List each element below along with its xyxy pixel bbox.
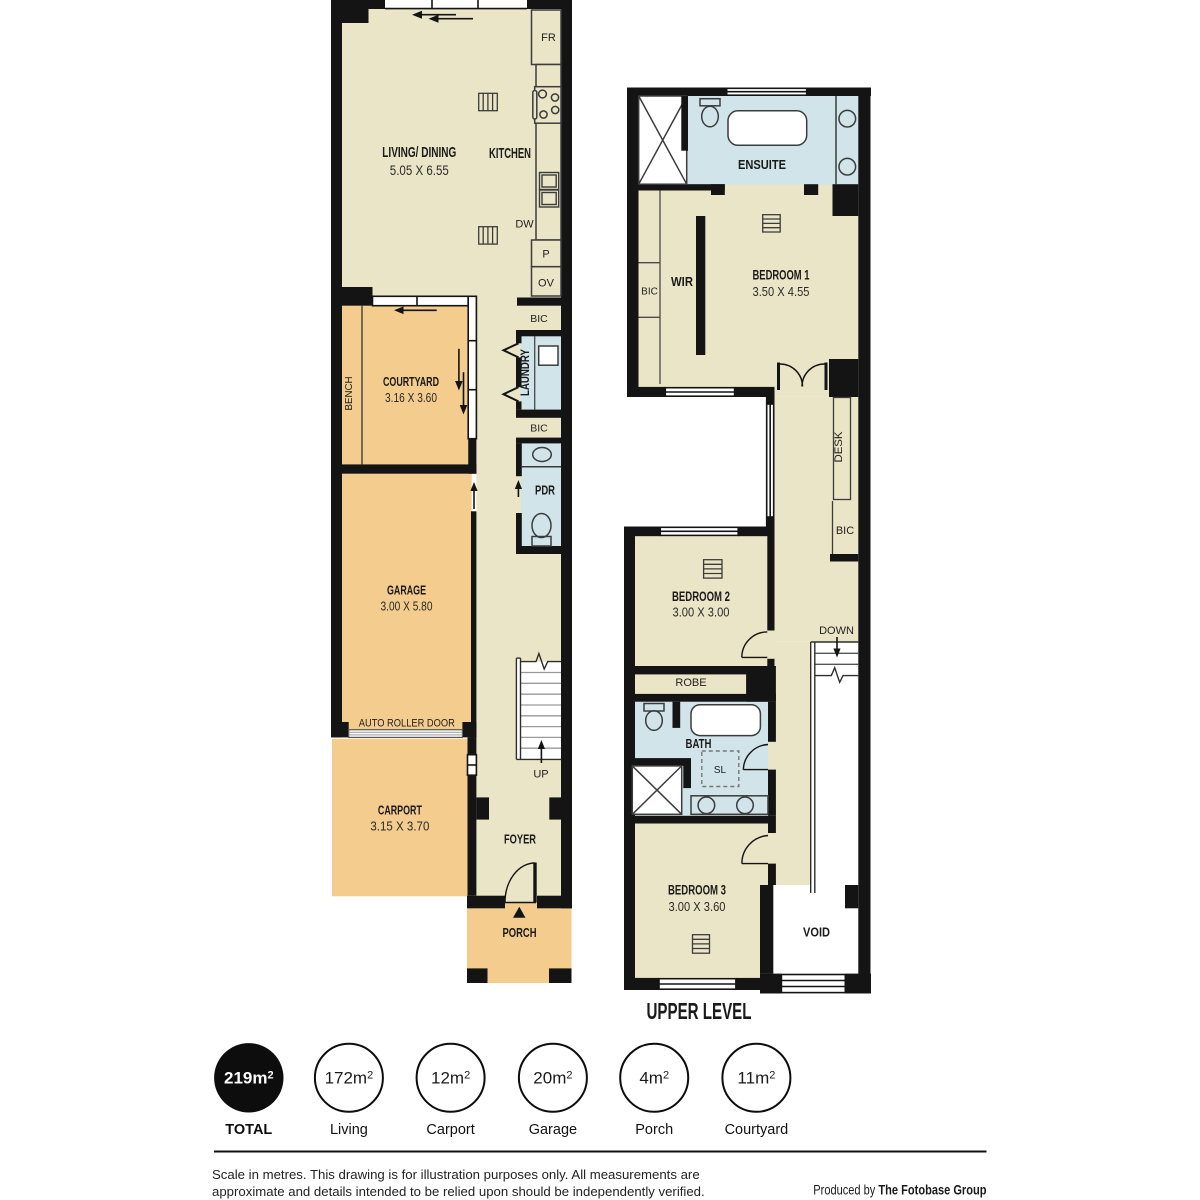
svg-text:LIVING/ DINING: LIVING/ DINING (382, 144, 456, 161)
svg-text:WIR: WIR (671, 275, 693, 289)
svg-text:219m2: 219m2 (224, 1069, 274, 1088)
svg-text:approximate and details intend: approximate and details intended to be r… (212, 1184, 705, 1199)
svg-text:AUTO ROLLER DOOR: AUTO ROLLER DOOR (359, 718, 455, 730)
svg-text:COURTYARD: COURTYARD (383, 375, 439, 389)
svg-text:VOID: VOID (803, 926, 830, 940)
svg-text:BIC: BIC (641, 287, 658, 298)
svg-text:172m2: 172m2 (325, 1069, 374, 1088)
svg-text:CARPORT: CARPORT (378, 804, 422, 818)
svg-text:OV: OV (538, 278, 555, 290)
svg-text:BATH: BATH (686, 737, 712, 751)
svg-text:3.00 X 3.60: 3.00 X 3.60 (669, 899, 726, 914)
svg-text:BIC: BIC (530, 423, 548, 435)
svg-text:KITCHEN: KITCHEN (489, 145, 531, 162)
svg-text:GARAGE: GARAGE (387, 584, 426, 598)
svg-text:P: P (542, 249, 549, 261)
svg-text:ROBE: ROBE (675, 677, 706, 689)
svg-text:BENCH: BENCH (343, 377, 355, 411)
svg-text:Porch: Porch (635, 1122, 673, 1138)
svg-text:PDR: PDR (535, 484, 555, 498)
svg-text:BEDROOM 3: BEDROOM 3 (668, 883, 726, 898)
svg-text:BEDROOM 2: BEDROOM 2 (672, 589, 730, 604)
svg-text:BEDROOM 1: BEDROOM 1 (753, 268, 810, 283)
svg-text:Scale in metres. This drawing: Scale in metres. This drawing is for ill… (212, 1167, 700, 1182)
svg-text:5.05 X 6.55: 5.05 X 6.55 (390, 162, 449, 178)
svg-text:FOYER: FOYER (504, 833, 536, 847)
svg-text:SL: SL (714, 765, 727, 776)
svg-text:Living: Living (330, 1122, 368, 1138)
svg-text:Garage: Garage (529, 1122, 577, 1138)
svg-text:3.00 X 3.00: 3.00 X 3.00 (673, 605, 730, 620)
svg-text:ENSUITE: ENSUITE (738, 157, 786, 172)
svg-text:UPPER LEVEL: UPPER LEVEL (647, 998, 752, 1024)
svg-text:DOWN: DOWN (819, 625, 854, 637)
svg-text:3.16 X 3.60: 3.16 X 3.60 (385, 391, 437, 405)
svg-text:Courtyard: Courtyard (725, 1122, 789, 1138)
svg-text:BIC: BIC (836, 525, 854, 537)
svg-text:Carport: Carport (426, 1122, 474, 1138)
svg-text:BIC: BIC (530, 313, 548, 325)
svg-text:DW: DW (515, 219, 534, 231)
svg-text:LAUNDRY: LAUNDRY (520, 349, 532, 396)
svg-text:FR: FR (541, 32, 556, 44)
svg-text:3.15 X 3.70: 3.15 X 3.70 (370, 820, 429, 834)
svg-text:3.50 X 4.55: 3.50 X 4.55 (753, 284, 810, 299)
svg-text:Produced by The Fotobase Group: Produced by The Fotobase Group (813, 1182, 986, 1198)
svg-text:3.00 X 5.80: 3.00 X 5.80 (381, 600, 433, 614)
svg-text:PORCH: PORCH (503, 926, 537, 940)
svg-text:UP: UP (533, 769, 548, 781)
svg-text:DESK: DESK (833, 431, 845, 463)
svg-text:TOTAL: TOTAL (225, 1122, 272, 1138)
